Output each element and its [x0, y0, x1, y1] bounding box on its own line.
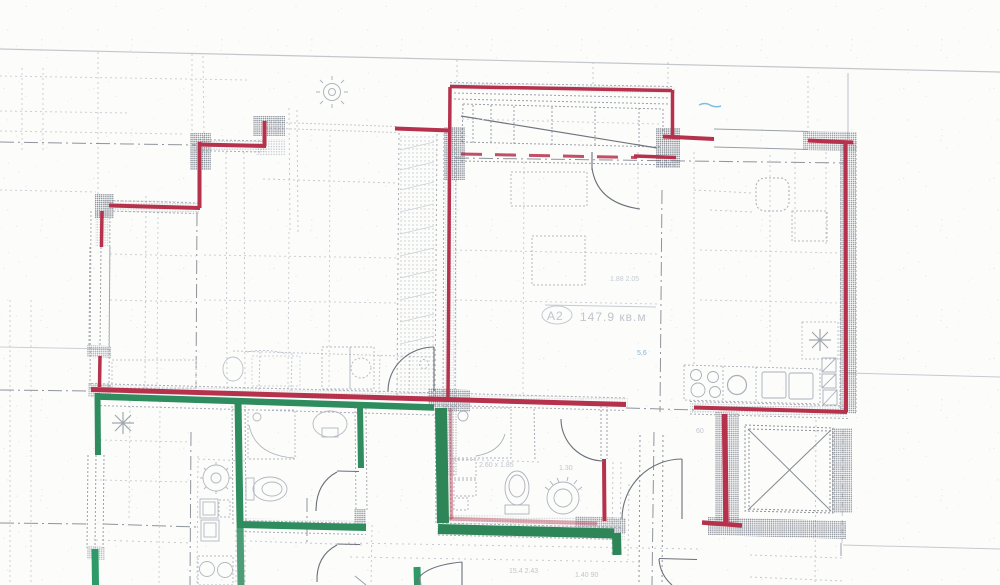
svg-text:147.9 кв.м: 147.9 кв.м — [580, 310, 647, 324]
svg-text:1.40 90: 1.40 90 — [575, 572, 598, 579]
svg-text:2.60 x 1.85: 2.60 x 1.85 — [479, 462, 514, 469]
svg-text:1.88 2.05: 1.88 2.05 — [610, 276, 639, 283]
svg-text:A2: A2 — [547, 309, 564, 323]
svg-text:1.30: 1.30 — [559, 465, 573, 472]
svg-text:5,6: 5,6 — [637, 350, 647, 357]
svg-text:60: 60 — [696, 428, 704, 435]
svg-text:15.4 2.43: 15.4 2.43 — [509, 568, 538, 575]
